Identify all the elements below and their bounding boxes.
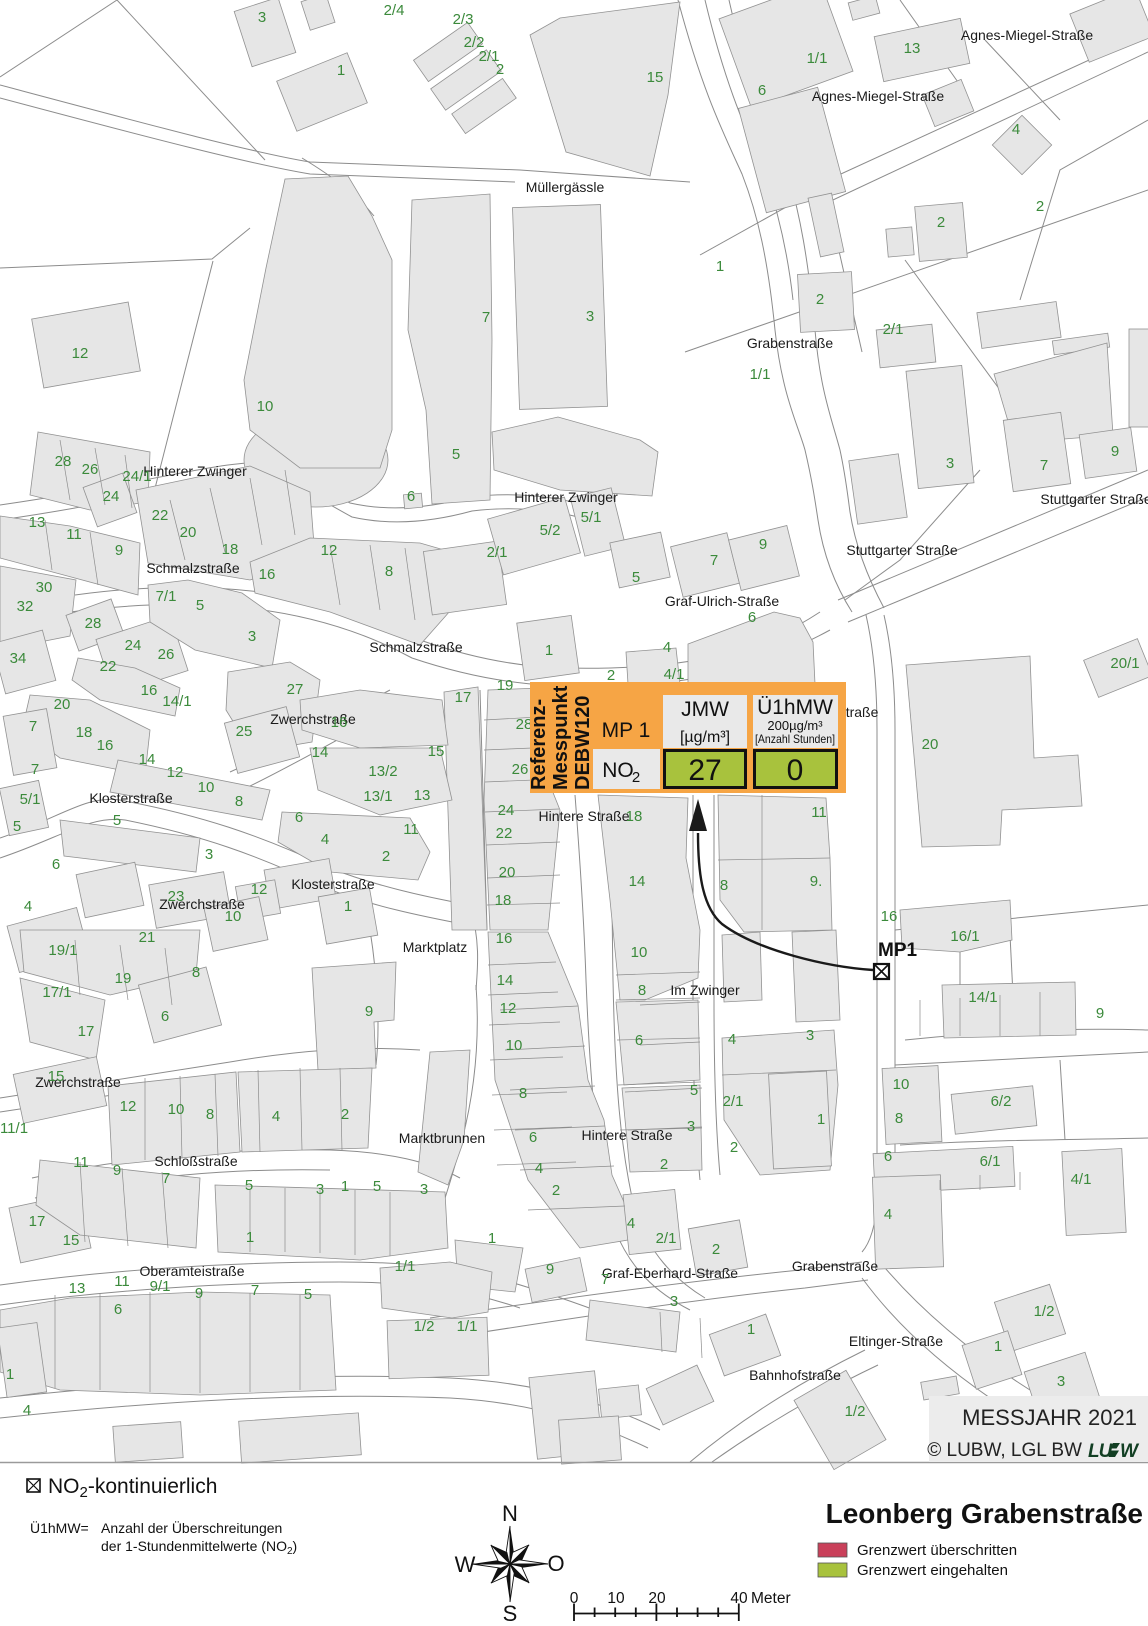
svg-text:8: 8 bbox=[206, 1106, 214, 1123]
svg-text:2/1: 2/1 bbox=[656, 1230, 677, 1247]
svg-text:Grabenstraße: Grabenstraße bbox=[792, 1258, 879, 1274]
svg-text:Im Zwinger: Im Zwinger bbox=[670, 982, 740, 998]
svg-text:Müllergässle: Müllergässle bbox=[526, 179, 605, 195]
svg-text:16: 16 bbox=[496, 930, 513, 947]
svg-text:1/2: 1/2 bbox=[845, 1403, 866, 1420]
svg-text:Ü1hMW: Ü1hMW bbox=[757, 696, 833, 719]
svg-text:6: 6 bbox=[295, 809, 303, 826]
svg-text:8: 8 bbox=[895, 1110, 903, 1127]
svg-text:Schmalzstraße: Schmalzstraße bbox=[146, 560, 240, 576]
svg-text:9: 9 bbox=[365, 1003, 373, 1020]
svg-text:16/1: 16/1 bbox=[950, 928, 979, 945]
svg-text:NO: NO bbox=[602, 759, 634, 782]
svg-text:3: 3 bbox=[316, 1181, 324, 1198]
svg-text:26: 26 bbox=[158, 646, 175, 663]
svg-text:S: S bbox=[503, 1601, 518, 1621]
svg-text:20: 20 bbox=[499, 864, 516, 881]
svg-text:7: 7 bbox=[31, 761, 39, 778]
svg-text:6: 6 bbox=[161, 1008, 169, 1025]
svg-text:14/1: 14/1 bbox=[162, 693, 191, 710]
svg-text:3: 3 bbox=[670, 1293, 678, 1310]
svg-text:5: 5 bbox=[690, 1082, 698, 1099]
svg-text:Agnes-Miegel-Straße: Agnes-Miegel-Straße bbox=[961, 27, 1093, 43]
svg-text:5/2: 5/2 bbox=[540, 522, 561, 539]
svg-text:12: 12 bbox=[500, 1000, 517, 1017]
svg-text:6: 6 bbox=[758, 82, 766, 99]
svg-text:21: 21 bbox=[139, 929, 156, 946]
svg-text:24: 24 bbox=[103, 488, 120, 505]
svg-text:17: 17 bbox=[455, 689, 472, 706]
svg-text:19/1: 19/1 bbox=[48, 942, 77, 959]
svg-text:Eltinger-Straße: Eltinger-Straße bbox=[849, 1333, 943, 1349]
svg-text:32: 32 bbox=[17, 598, 34, 615]
svg-text:2/1: 2/1 bbox=[487, 544, 508, 561]
svg-text:6: 6 bbox=[52, 856, 60, 873]
svg-text:6: 6 bbox=[884, 1148, 892, 1165]
svg-text:2: 2 bbox=[607, 667, 615, 684]
svg-text:4: 4 bbox=[884, 1206, 892, 1223]
svg-text:2: 2 bbox=[660, 1156, 668, 1173]
svg-text:2: 2 bbox=[496, 61, 504, 78]
svg-text:W: W bbox=[1120, 1441, 1140, 1462]
svg-text:Leonberg Grabenstraße: Leonberg Grabenstraße bbox=[826, 1498, 1143, 1529]
svg-text:22: 22 bbox=[496, 825, 513, 842]
svg-text:Stuttgarter Straße: Stuttgarter Straße bbox=[846, 542, 957, 558]
svg-text:3: 3 bbox=[586, 308, 594, 325]
svg-text:1/2: 1/2 bbox=[1034, 1303, 1055, 1320]
svg-text:W: W bbox=[455, 1552, 476, 1577]
svg-text:40: 40 bbox=[730, 1590, 748, 1607]
svg-text:3: 3 bbox=[687, 1118, 695, 1135]
svg-text:17: 17 bbox=[29, 1213, 46, 1230]
svg-text:DEBW120: DEBW120 bbox=[572, 696, 594, 790]
svg-text:NO2-kontinuierlich: NO2-kontinuierlich bbox=[48, 1475, 217, 1501]
svg-text:2: 2 bbox=[712, 1241, 720, 1258]
svg-text:7: 7 bbox=[601, 1271, 609, 1288]
svg-text:Bahnhofstraße: Bahnhofstraße bbox=[749, 1367, 841, 1383]
svg-text:11: 11 bbox=[73, 1154, 89, 1171]
svg-text:5/1: 5/1 bbox=[581, 509, 602, 526]
svg-text:1: 1 bbox=[747, 1321, 755, 1338]
svg-text:14: 14 bbox=[497, 972, 514, 989]
svg-text:5: 5 bbox=[245, 1177, 253, 1194]
svg-text:Oberamteistraße: Oberamteistraße bbox=[139, 1263, 244, 1279]
svg-text:10: 10 bbox=[506, 1037, 523, 1054]
svg-text:11: 11 bbox=[811, 804, 827, 821]
svg-text:[Anzahl Stunden]: [Anzahl Stunden] bbox=[755, 732, 835, 746]
svg-text:26: 26 bbox=[512, 761, 529, 778]
svg-text:Graf-Eberhard-Straße: Graf-Eberhard-Straße bbox=[602, 1265, 738, 1281]
svg-text:10: 10 bbox=[198, 779, 215, 796]
svg-text:7: 7 bbox=[251, 1282, 259, 1299]
svg-text:27: 27 bbox=[287, 681, 304, 698]
svg-text:8: 8 bbox=[519, 1085, 527, 1102]
svg-text:Stuttgarter Straße: Stuttgarter Straße bbox=[1040, 491, 1148, 507]
svg-text:4: 4 bbox=[321, 831, 329, 848]
svg-text:2: 2 bbox=[552, 1182, 560, 1199]
svg-text:7: 7 bbox=[162, 1170, 170, 1187]
svg-text:5: 5 bbox=[304, 1286, 312, 1303]
svg-text:16: 16 bbox=[881, 908, 898, 925]
svg-text:19: 19 bbox=[115, 970, 132, 987]
svg-text:8: 8 bbox=[720, 877, 728, 894]
svg-text:6: 6 bbox=[114, 1301, 122, 1318]
svg-text:8: 8 bbox=[385, 563, 393, 580]
svg-text:9: 9 bbox=[195, 1285, 203, 1302]
svg-text:9: 9 bbox=[1111, 443, 1119, 460]
svg-text:28: 28 bbox=[85, 615, 102, 632]
svg-text:9/1: 9/1 bbox=[150, 1278, 171, 1295]
svg-text:1: 1 bbox=[341, 1178, 349, 1195]
svg-text:13: 13 bbox=[69, 1280, 86, 1297]
svg-text:26: 26 bbox=[82, 461, 99, 478]
svg-text:34: 34 bbox=[10, 650, 27, 667]
svg-text:© LUBW, LGL BW: © LUBW, LGL BW bbox=[927, 1440, 1082, 1461]
svg-text:1: 1 bbox=[344, 898, 352, 915]
svg-text:11/1: 11/1 bbox=[0, 1120, 28, 1137]
svg-text:Agnes-Miegel-Straße: Agnes-Miegel-Straße bbox=[812, 88, 944, 104]
svg-text:1/1: 1/1 bbox=[395, 1258, 416, 1275]
svg-text:5: 5 bbox=[13, 818, 21, 835]
svg-text:6/1: 6/1 bbox=[980, 1153, 1001, 1170]
svg-text:28: 28 bbox=[55, 453, 72, 470]
svg-text:2: 2 bbox=[730, 1139, 738, 1156]
svg-text:12: 12 bbox=[251, 881, 268, 898]
svg-text:Messpunkt: Messpunkt bbox=[550, 685, 572, 790]
svg-text:1: 1 bbox=[817, 1111, 825, 1128]
svg-text:16: 16 bbox=[141, 682, 158, 699]
svg-text:1: 1 bbox=[6, 1366, 14, 1383]
svg-text:1/2: 1/2 bbox=[414, 1318, 435, 1335]
svg-text:20: 20 bbox=[922, 736, 939, 753]
svg-text:22: 22 bbox=[152, 507, 169, 524]
svg-text:9: 9 bbox=[759, 536, 767, 553]
svg-text:Hinterer Zwinger: Hinterer Zwinger bbox=[514, 489, 618, 505]
svg-text:4: 4 bbox=[272, 1108, 280, 1125]
svg-text:18: 18 bbox=[222, 541, 239, 558]
svg-text:4/1: 4/1 bbox=[1071, 1171, 1092, 1188]
svg-text:JMW: JMW bbox=[681, 698, 729, 721]
svg-text:10: 10 bbox=[225, 908, 242, 925]
svg-text:5/1: 5/1 bbox=[20, 791, 41, 808]
svg-text:4: 4 bbox=[728, 1031, 736, 1048]
svg-text:7: 7 bbox=[1040, 457, 1048, 474]
svg-text:14: 14 bbox=[139, 751, 156, 768]
svg-text:15: 15 bbox=[647, 69, 664, 86]
svg-text:13: 13 bbox=[29, 514, 46, 531]
svg-text:7: 7 bbox=[482, 309, 490, 326]
svg-text:4: 4 bbox=[663, 639, 671, 656]
svg-text:Hintere Straße: Hintere Straße bbox=[538, 808, 629, 824]
svg-text:16: 16 bbox=[97, 737, 114, 754]
svg-text:13/2: 13/2 bbox=[368, 763, 397, 780]
svg-text:18: 18 bbox=[626, 808, 643, 825]
svg-text:3: 3 bbox=[420, 1181, 428, 1198]
svg-text:10: 10 bbox=[257, 398, 274, 415]
svg-text:30: 30 bbox=[36, 579, 53, 596]
svg-text:12: 12 bbox=[120, 1098, 137, 1115]
svg-text:6: 6 bbox=[407, 488, 415, 505]
svg-text:Hinterer Zwinger: Hinterer Zwinger bbox=[143, 463, 247, 479]
svg-text:5: 5 bbox=[373, 1178, 381, 1195]
svg-text:MP1: MP1 bbox=[878, 940, 918, 961]
svg-text:2: 2 bbox=[937, 214, 945, 231]
svg-text:15: 15 bbox=[428, 743, 445, 760]
svg-text:12: 12 bbox=[72, 345, 89, 362]
svg-text:3: 3 bbox=[248, 628, 256, 645]
svg-text:2/3: 2/3 bbox=[453, 11, 474, 28]
svg-text:20: 20 bbox=[648, 1590, 666, 1607]
svg-text:14: 14 bbox=[312, 744, 329, 761]
svg-text:Klosterstraße: Klosterstraße bbox=[89, 790, 172, 806]
svg-text:3: 3 bbox=[205, 846, 213, 863]
svg-text:2/1: 2/1 bbox=[723, 1093, 744, 1110]
svg-text:8: 8 bbox=[638, 982, 646, 999]
svg-text:18: 18 bbox=[76, 724, 93, 741]
svg-text:3: 3 bbox=[806, 1027, 814, 1044]
svg-text:4: 4 bbox=[24, 898, 32, 915]
svg-text:4/1: 4/1 bbox=[664, 666, 685, 683]
svg-text:1/1: 1/1 bbox=[457, 1318, 478, 1335]
svg-text:Ü1hMW=: Ü1hMW= bbox=[30, 1519, 89, 1536]
svg-text:LU: LU bbox=[1088, 1441, 1114, 1462]
svg-text:25: 25 bbox=[236, 723, 253, 740]
svg-text:1: 1 bbox=[488, 1230, 496, 1247]
svg-text:10: 10 bbox=[631, 944, 648, 961]
svg-text:4: 4 bbox=[627, 1215, 635, 1232]
svg-text:3: 3 bbox=[258, 9, 266, 26]
svg-text:4: 4 bbox=[1012, 121, 1020, 138]
svg-text:200µg/m³: 200µg/m³ bbox=[767, 718, 823, 733]
svg-text:7: 7 bbox=[710, 552, 718, 569]
svg-text:Marktbrunnen: Marktbrunnen bbox=[399, 1130, 485, 1146]
svg-text:0: 0 bbox=[787, 754, 804, 787]
svg-text:6: 6 bbox=[635, 1032, 643, 1049]
svg-text:13: 13 bbox=[904, 40, 921, 57]
svg-text:Schloßstraße: Schloßstraße bbox=[154, 1153, 237, 1169]
svg-text:27: 27 bbox=[688, 754, 721, 787]
svg-text:2: 2 bbox=[1036, 198, 1044, 215]
svg-text:14/1: 14/1 bbox=[968, 989, 997, 1006]
svg-text:24: 24 bbox=[125, 637, 142, 654]
svg-text:0: 0 bbox=[570, 1590, 579, 1607]
svg-text:8: 8 bbox=[192, 964, 200, 981]
svg-text:5: 5 bbox=[196, 597, 204, 614]
svg-text:10: 10 bbox=[168, 1101, 185, 1118]
svg-text:1/1: 1/1 bbox=[750, 366, 771, 383]
svg-text:2: 2 bbox=[816, 291, 824, 308]
svg-text:10: 10 bbox=[607, 1590, 625, 1607]
svg-text:5: 5 bbox=[632, 569, 640, 586]
svg-text:11: 11 bbox=[403, 821, 419, 838]
svg-text:Referenz-: Referenz- bbox=[528, 699, 550, 790]
svg-text:7/1: 7/1 bbox=[156, 588, 177, 605]
svg-text:1: 1 bbox=[545, 642, 553, 659]
svg-text:15: 15 bbox=[63, 1232, 80, 1249]
svg-text:Anzahl der Überschreitungen: Anzahl der Überschreitungen bbox=[101, 1519, 282, 1536]
svg-text:Graf-Ulrich-Straße: Graf-Ulrich-Straße bbox=[665, 593, 780, 609]
svg-text:9: 9 bbox=[115, 542, 123, 559]
svg-text:Grenzwert überschritten: Grenzwert überschritten bbox=[857, 1542, 1017, 1559]
svg-text:4: 4 bbox=[23, 1402, 31, 1419]
svg-text:22: 22 bbox=[100, 658, 117, 675]
svg-text:20/1: 20/1 bbox=[1110, 655, 1139, 672]
svg-text:Marktplatz: Marktplatz bbox=[403, 939, 468, 955]
svg-text:24: 24 bbox=[498, 802, 515, 819]
svg-text:20: 20 bbox=[180, 524, 197, 541]
svg-text:1: 1 bbox=[994, 1338, 1002, 1355]
svg-text:16: 16 bbox=[331, 714, 348, 731]
svg-text:15: 15 bbox=[48, 1068, 65, 1085]
svg-text:MP 1: MP 1 bbox=[602, 719, 651, 742]
svg-text:2/1: 2/1 bbox=[883, 321, 904, 338]
svg-text:14: 14 bbox=[629, 873, 646, 890]
svg-text:Meter: Meter bbox=[751, 1590, 791, 1607]
svg-text:O: O bbox=[547, 1551, 564, 1576]
svg-text:3: 3 bbox=[946, 455, 954, 472]
svg-text:1: 1 bbox=[337, 62, 345, 79]
svg-text:N: N bbox=[502, 1501, 518, 1526]
svg-text:4: 4 bbox=[535, 1160, 543, 1177]
svg-text:1/1: 1/1 bbox=[807, 50, 828, 67]
svg-text:5: 5 bbox=[113, 812, 121, 829]
svg-text:Grenzwert eingehalten: Grenzwert eingehalten bbox=[857, 1562, 1008, 1579]
svg-text:MESSJAHR 2021: MESSJAHR 2021 bbox=[962, 1405, 1137, 1430]
svg-text:13: 13 bbox=[414, 787, 431, 804]
svg-text:24/1: 24/1 bbox=[122, 468, 151, 485]
svg-text:5: 5 bbox=[452, 446, 460, 463]
svg-text:Hintere Straße: Hintere Straße bbox=[581, 1127, 672, 1143]
svg-text:3: 3 bbox=[1057, 1373, 1065, 1390]
svg-text:13/1: 13/1 bbox=[363, 788, 392, 805]
svg-text:9: 9 bbox=[113, 1162, 121, 1179]
svg-text:19: 19 bbox=[497, 677, 514, 694]
svg-text:11: 11 bbox=[114, 1273, 130, 1290]
svg-text:Grabenstraße: Grabenstraße bbox=[747, 335, 834, 351]
svg-text:16: 16 bbox=[259, 566, 276, 583]
svg-text:10: 10 bbox=[893, 1076, 910, 1093]
svg-text:11: 11 bbox=[66, 526, 82, 543]
svg-text:17: 17 bbox=[78, 1023, 95, 1040]
svg-text:20: 20 bbox=[54, 696, 71, 713]
svg-text:23: 23 bbox=[168, 888, 185, 905]
svg-text:1: 1 bbox=[716, 258, 724, 275]
svg-text:12: 12 bbox=[167, 764, 184, 781]
svg-text:2: 2 bbox=[632, 769, 640, 786]
svg-text:9: 9 bbox=[546, 1261, 554, 1278]
svg-text:2: 2 bbox=[341, 1106, 349, 1123]
svg-text:6: 6 bbox=[529, 1129, 537, 1146]
svg-text:6/2: 6/2 bbox=[991, 1093, 1012, 1110]
svg-text:6: 6 bbox=[748, 609, 756, 626]
svg-text:12: 12 bbox=[321, 542, 338, 559]
svg-text:[µg/m³]: [µg/m³] bbox=[680, 729, 730, 746]
svg-text:Schmalzstraße: Schmalzstraße bbox=[369, 639, 463, 655]
svg-text:Klosterstraße: Klosterstraße bbox=[291, 876, 374, 892]
svg-text:2: 2 bbox=[382, 848, 390, 865]
svg-text:17/1: 17/1 bbox=[42, 984, 71, 1001]
svg-text:8: 8 bbox=[235, 793, 243, 810]
svg-text:7: 7 bbox=[29, 718, 37, 735]
svg-text:18: 18 bbox=[495, 892, 512, 909]
svg-text:9.: 9. bbox=[810, 873, 823, 890]
svg-text:9: 9 bbox=[1096, 1005, 1104, 1022]
svg-text:1: 1 bbox=[246, 1229, 254, 1246]
svg-text:2/4: 2/4 bbox=[384, 2, 405, 19]
